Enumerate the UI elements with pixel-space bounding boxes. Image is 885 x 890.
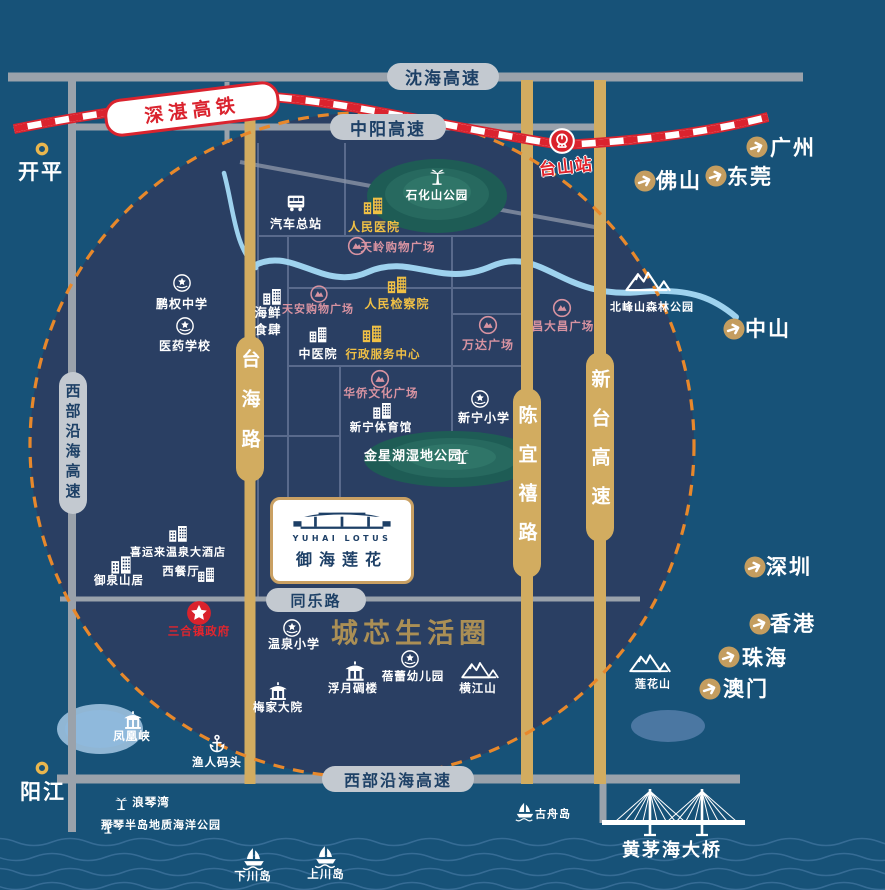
poi-label: 人民医院 bbox=[348, 219, 400, 235]
arrow-icon bbox=[705, 165, 728, 188]
badge-icon bbox=[175, 316, 196, 337]
poi-label: 中医院 bbox=[298, 346, 337, 362]
mall-icon bbox=[552, 298, 572, 318]
poi-label: 古舟岛 bbox=[535, 808, 571, 823]
poi-label: 梅家大院 bbox=[253, 700, 303, 716]
poi-label: 莲花山 bbox=[635, 678, 671, 693]
slogan-text: 城芯生活圈 bbox=[331, 612, 491, 651]
city-label: 深圳 bbox=[766, 553, 812, 581]
pagoda-icon bbox=[268, 681, 289, 702]
poi-label: 汽车总站 bbox=[270, 216, 322, 232]
poi-label: 万达广场 bbox=[462, 337, 514, 353]
zhongyang-expressway-label: 中阳高速 bbox=[330, 114, 446, 140]
poi-label: 天安购物广场 bbox=[282, 303, 354, 318]
buildings-icon bbox=[372, 400, 393, 421]
ring-icon bbox=[34, 760, 50, 776]
palm-icon bbox=[112, 793, 130, 811]
project-name-cn: 御海莲花 bbox=[296, 546, 388, 570]
tongle-road-label: 同乐路 bbox=[266, 588, 366, 612]
city-label: 东莞 bbox=[727, 163, 773, 191]
buildings-icon bbox=[386, 273, 408, 295]
poi-label: 三合镇政府 bbox=[168, 624, 231, 640]
arrow-icon bbox=[749, 613, 772, 636]
poi-label: 浮月碉楼 bbox=[328, 681, 378, 697]
city-label: 开平 bbox=[18, 158, 64, 186]
xibu-coastal-expressway-bottom-label: 西部沿海高速 bbox=[322, 766, 474, 792]
poi-label: 温泉小学 bbox=[268, 636, 320, 652]
poi-label: 新宁小学 bbox=[458, 410, 510, 426]
arrow-icon bbox=[744, 556, 767, 579]
location-map: 沈海高速 中阳高速 同乐路 西部沿海高速 西部沿海高速 台海路 陈宜禧路 新台高… bbox=[0, 0, 885, 890]
arrow-icon bbox=[723, 318, 746, 341]
bridge-label: 黄茅海大桥 bbox=[622, 836, 722, 862]
taihai-road-label: 台海路 bbox=[236, 336, 264, 482]
ring-icon bbox=[34, 141, 50, 157]
badge-icon bbox=[470, 389, 491, 410]
poi-label: 渔人码头 bbox=[192, 755, 242, 771]
city-label: 澳门 bbox=[723, 675, 769, 703]
buildings-icon bbox=[168, 523, 189, 544]
city-label: 广州 bbox=[770, 134, 816, 162]
poi-label: 那琴半岛地质海洋公园 bbox=[101, 819, 221, 834]
badge-icon bbox=[400, 649, 421, 670]
city-label: 中山 bbox=[745, 315, 791, 343]
project-name-en: YUHAI LOTUS bbox=[293, 534, 392, 543]
anchor-icon bbox=[207, 734, 228, 755]
xintai-expressway-label: 新台高速 bbox=[586, 352, 614, 542]
poi-label: 医药学校 bbox=[159, 338, 211, 354]
poi-label: 台山站 bbox=[538, 154, 594, 182]
project-logo-card: YUHAI LOTUS 御海莲花 bbox=[270, 497, 414, 584]
mall-icon bbox=[478, 315, 498, 335]
bus-icon bbox=[285, 192, 307, 214]
poi-label: 下川岛 bbox=[234, 869, 272, 885]
poi-label: 昌大昌广场 bbox=[532, 319, 595, 335]
poi-label: 人民检察院 bbox=[364, 296, 429, 312]
poi-label: 石化山公园 bbox=[406, 188, 469, 204]
city-label: 阳江 bbox=[20, 778, 66, 806]
poi-label: 天岭购物广场 bbox=[361, 240, 436, 256]
boat-icon bbox=[514, 801, 536, 823]
poi-label: 上川岛 bbox=[307, 867, 345, 883]
city-label: 珠海 bbox=[742, 644, 788, 672]
chenyixi-road-label: 陈宜禧路 bbox=[513, 388, 541, 578]
mall-icon bbox=[310, 285, 329, 304]
city-label: 香港 bbox=[770, 610, 816, 638]
mountain-icon bbox=[625, 267, 671, 293]
buildings-icon bbox=[362, 194, 384, 216]
pavilion-logo-icon bbox=[288, 505, 396, 532]
buildings-icon bbox=[308, 324, 328, 344]
badge-icon bbox=[172, 273, 193, 294]
mountain-icon bbox=[629, 650, 671, 674]
boat-icon bbox=[313, 844, 339, 870]
poi-label: 鹏权中学 bbox=[156, 296, 208, 312]
poi-label: 新宁体育馆 bbox=[350, 420, 413, 436]
poi-label: 西餐厅 bbox=[162, 564, 200, 580]
buildings-icon bbox=[262, 286, 283, 307]
arrow-icon bbox=[634, 170, 657, 193]
palm-icon bbox=[426, 164, 448, 186]
rail-icon bbox=[549, 128, 576, 155]
poi-label: 御泉山居 bbox=[94, 573, 144, 589]
xibu-coastal-expressway-left-label: 西部沿海高速 bbox=[59, 372, 87, 514]
poi-label: 喜运来温泉大酒店 bbox=[130, 546, 226, 561]
poi-label: 蓓蕾幼儿园 bbox=[382, 669, 445, 685]
shenhai-expressway-label: 沈海高速 bbox=[387, 63, 499, 90]
poi-label: 横江山 bbox=[459, 681, 497, 697]
buildings-icon bbox=[110, 553, 133, 576]
buildings-icon bbox=[361, 322, 383, 344]
mountain-icon bbox=[461, 658, 499, 680]
poi-label: 行政服务中心 bbox=[346, 347, 421, 363]
poi-label: 浪琴湾 bbox=[132, 795, 170, 811]
city-label: 佛山 bbox=[656, 167, 702, 195]
poi-label: 凤凰峡 bbox=[113, 729, 151, 745]
arrow-icon bbox=[699, 678, 722, 701]
arrow-icon bbox=[718, 646, 741, 669]
poi-label: 北峰山森林公园 bbox=[610, 301, 694, 316]
arrow-icon bbox=[746, 136, 769, 159]
star-icon bbox=[186, 600, 212, 626]
pagoda-icon bbox=[344, 660, 367, 683]
boat-icon bbox=[241, 846, 267, 872]
poi-label: 海鲜 食肆 bbox=[254, 305, 281, 339]
poi-label: 金星湖湿地公园 bbox=[364, 448, 462, 466]
pagoda-icon bbox=[123, 710, 144, 731]
